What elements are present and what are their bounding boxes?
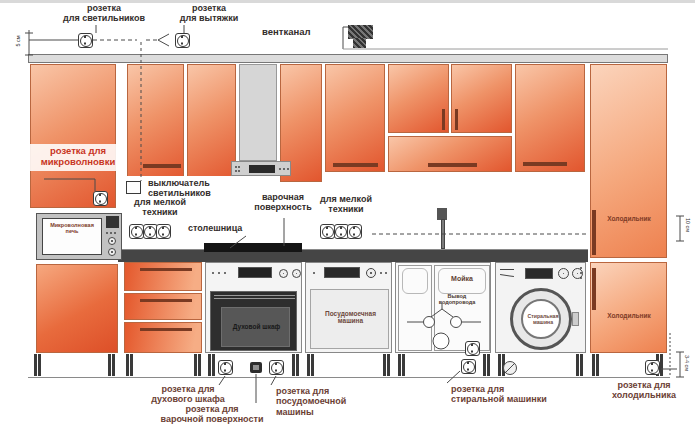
oven-display: [238, 267, 272, 278]
cabinet-leg: [592, 354, 595, 376]
hood-buttons: [235, 166, 237, 168]
microwave-display: [106, 216, 119, 228]
microwave-buttons: [106, 232, 108, 234]
label-light-switch: выключательсветильников: [148, 178, 211, 199]
dishwasher-door: Посудомоечнаямашина: [310, 289, 389, 349]
cabinet-leg: [576, 354, 579, 376]
label-outlet-washer: розетка длястиральной машинки: [451, 384, 547, 405]
washing-machine: Стиральнаямашина: [495, 262, 586, 353]
label-countertop: столешница: [188, 223, 242, 233]
washer-knob: [558, 268, 569, 279]
oven-door: Духовой шкаф: [210, 291, 297, 351]
microwave-knob: [108, 248, 116, 256]
label-outlet-fridge: розетка дляхолодильника: [594, 380, 694, 401]
vent-chimney-icon: [348, 25, 373, 39]
label-outlet-dishwasher: розетка дляпосудомоечноймашины: [276, 386, 346, 417]
fridge-handle: [592, 268, 596, 310]
cabinet-leg: [208, 354, 211, 376]
cabinet-leg: [108, 354, 111, 376]
oven-knob: [292, 269, 301, 278]
oven-label: Духовой шкаф: [222, 323, 291, 330]
microwave-label: Микроволноваяпечь: [43, 222, 101, 235]
dimension-left: 5 см: [15, 35, 21, 46]
label-small-appliances-left: для мелкойтехники: [128, 197, 192, 218]
cabinet-leg: [398, 354, 401, 376]
drawer-handle: [140, 299, 192, 302]
cabinet-leg: [483, 354, 486, 376]
sink-cabinet: Мойка: [395, 262, 491, 353]
fridge-upper-door: [590, 64, 667, 258]
label-small-appliances-right: для мелкойтехники: [315, 194, 377, 215]
base-cabinet-door-left: [36, 264, 118, 353]
oven: Духовой шкаф: [205, 262, 302, 353]
dimension-right-bottom: 3-4 см: [684, 355, 690, 371]
lights-outlet-icon: [78, 33, 93, 48]
oven-buttons: [212, 272, 214, 274]
washer-drum: Стиральнаямашина: [510, 288, 572, 350]
microwave-knob: [108, 237, 116, 245]
washer-display: [525, 268, 553, 279]
hood-outlet-icon: [175, 33, 190, 48]
cornice: [28, 54, 668, 63]
door-handle: [523, 162, 567, 166]
label-outlet-microwave: розетка длямикроволновки: [30, 146, 126, 168]
dishwasher-display: [324, 267, 360, 278]
fridge-outlet-icon: [645, 360, 660, 375]
label-outlet-lights: розеткадля светильников: [49, 3, 159, 24]
faucet-stem: [441, 219, 445, 249]
dimension-right-top: 10 см: [685, 218, 691, 232]
drawer-handle: [140, 268, 192, 271]
label-vent-channel: вентканал: [262, 27, 310, 38]
cabinet-leg: [34, 354, 37, 376]
dishwasher-outlet-icon: [269, 360, 284, 375]
cabinet-leg: [498, 354, 501, 376]
vent-chimney-stem: [353, 38, 366, 48]
oven-knob: [279, 269, 288, 278]
oven-door-panel: Духовой шкаф: [221, 307, 290, 347]
upper-cabinet-door: [187, 64, 236, 182]
vent-duct-column: [239, 64, 277, 161]
small-appliance-outlets-right-icon: [320, 224, 361, 239]
label-outlet-hood: розеткадля вытяжки: [155, 3, 263, 24]
upper-cabinet-door: [325, 64, 385, 172]
drawer: [124, 322, 202, 353]
cabinet-leg: [383, 354, 386, 376]
fridge-lower-label: Холодильник: [596, 312, 662, 319]
small-appliance-outlets-left-icon: [129, 224, 170, 239]
upper-cabinet-door: [451, 64, 512, 133]
fridge-lower-door: [590, 262, 667, 353]
washer-outlet-lower-icon: [461, 359, 476, 374]
drawer: [124, 293, 202, 320]
upper-cabinet-door: [388, 64, 449, 133]
washer-knob: [572, 268, 583, 279]
upper-cabinet-door: [515, 64, 585, 172]
drawer: [124, 262, 202, 291]
countertop-slab: [118, 249, 588, 262]
floor-line: [28, 377, 670, 378]
kitchen-wiring-diagram: Духовой шкаф Посудомоечнаямашина Мойка В…: [0, 0, 695, 434]
cabinet-leg: [292, 354, 295, 376]
door-handle: [442, 109, 445, 130]
label-outlet-cooktop: розетка дляварочной поверхности: [146, 404, 278, 425]
door-handle: [428, 163, 477, 167]
microwave-outlet-icon: [93, 191, 108, 206]
range-hood: [231, 161, 291, 176]
hood-display: [249, 165, 275, 173]
upper-cabinet-tall-left: [30, 64, 116, 208]
label-cooktop: варочнаяповерхность: [243, 192, 323, 213]
cabinet-leg: [307, 354, 310, 376]
washer-label: Стиральнаямашина: [523, 314, 563, 326]
dishwasher-knob: [366, 268, 376, 278]
microwave: [36, 213, 122, 260]
sink-label: Мойка: [438, 275, 486, 283]
fridge-upper-label: Холодильник: [596, 215, 662, 222]
door-handle: [333, 163, 378, 167]
drawer-handle: [140, 328, 192, 331]
hood-dots: [279, 168, 281, 170]
dishwasher-label: Посудомоечнаямашина: [311, 310, 390, 325]
cabinet-leg: [194, 354, 197, 376]
light-switch-icon: [126, 181, 141, 194]
water-supply-label: Выводводопровода: [431, 293, 483, 306]
cooktop-connector-icon: [250, 362, 262, 373]
cooktop-surface: [204, 243, 302, 252]
washer-outlet-upper-icon: [465, 341, 480, 356]
door-handle: [455, 109, 458, 130]
oven-outlet-icon: [218, 360, 233, 375]
washer-latch: [572, 312, 579, 326]
door-handle: [143, 164, 181, 168]
label-outlet-oven: розетка длядухового шкафа: [136, 384, 240, 405]
dishwasher: Посудомоечнаямашина: [305, 262, 392, 353]
cabinet-leg: [126, 354, 129, 376]
